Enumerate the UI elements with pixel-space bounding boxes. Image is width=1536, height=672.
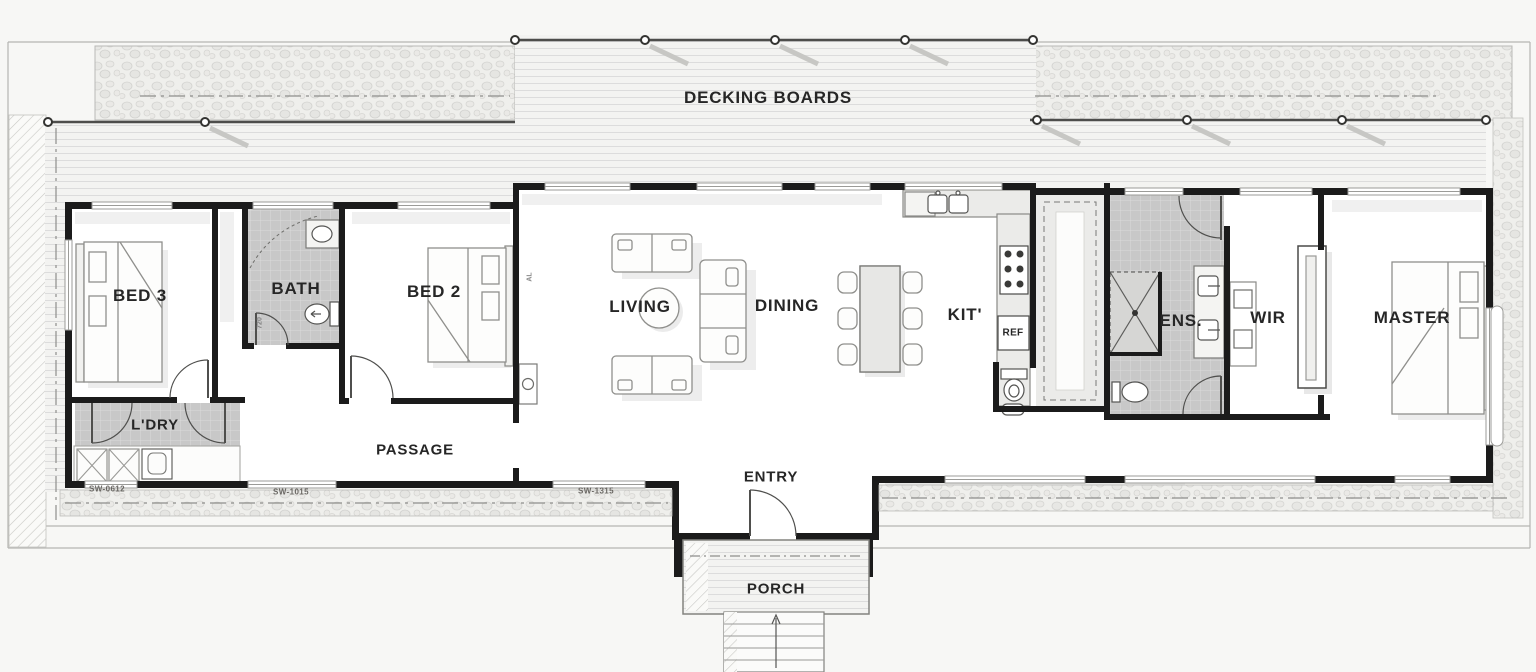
room-label-bath: BATH xyxy=(271,279,320,299)
room-label-living: LIVING xyxy=(609,297,670,317)
window-tag-sw1015: SW-1015 xyxy=(273,488,309,497)
room-label-passage: PASSAGE xyxy=(376,442,454,459)
room-label-bed3: BED 3 xyxy=(113,286,167,306)
room-label-wir: WIR xyxy=(1250,308,1285,328)
window-type-tag: AL xyxy=(527,272,534,281)
door-size-tag: 720 xyxy=(257,317,264,329)
floor-plan: DECKING BOARDS BED 3 BATH BED 2 LIVING D… xyxy=(0,0,1536,672)
room-label-entry: ENTRY xyxy=(744,469,798,486)
room-label-laundry: L'DRY xyxy=(131,417,179,434)
room-label-ensuite: ENS. xyxy=(1160,311,1203,331)
room-label-bed2: BED 2 xyxy=(407,282,461,302)
room-label-porch: PORCH xyxy=(747,581,805,598)
fridge-label: REF xyxy=(1003,328,1024,339)
window-tag-sw0612: SW-0612 xyxy=(89,485,125,494)
room-label-kitchen: KIT' xyxy=(948,305,983,325)
room-label-dining: DINING xyxy=(755,296,819,316)
window-tag-sw1315: SW-1315 xyxy=(578,487,614,496)
room-label-master: MASTER xyxy=(1374,308,1451,328)
deck-label: DECKING BOARDS xyxy=(684,88,852,108)
